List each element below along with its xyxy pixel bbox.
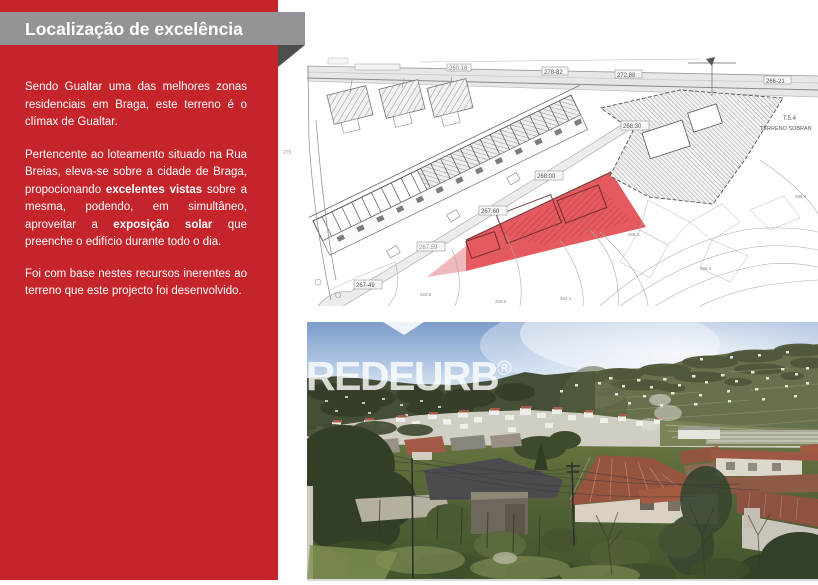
svg-text:REDEURB: REDEURB — [307, 353, 498, 399]
svg-text:272.88: 272.88 — [617, 73, 636, 79]
svg-text:267.60: 267.60 — [481, 209, 500, 215]
svg-text:265.4: 265.4 — [628, 232, 640, 237]
svg-text:263.8: 263.8 — [420, 292, 432, 297]
svg-text:263.0: 263.0 — [495, 299, 507, 304]
svg-text:260.16: 260.16 — [449, 66, 468, 72]
svg-text:T.5.4: T.5.4 — [783, 116, 797, 122]
svg-text:®: ® — [497, 358, 512, 380]
svg-text:266-21: 266-21 — [766, 79, 785, 85]
svg-text:278-82: 278-82 — [544, 70, 563, 76]
svg-text:262.1: 262.1 — [560, 296, 572, 301]
svg-text:267-49: 267-49 — [356, 283, 375, 289]
svg-text:266.4: 266.4 — [700, 266, 712, 271]
svg-text:286.4: 286.4 — [795, 194, 807, 199]
svg-text:268.30: 268.30 — [623, 124, 642, 130]
svg-text:268:00: 268:00 — [537, 174, 556, 180]
svg-text:TERRENO SOBRAN: TERRENO SOBRAN — [760, 126, 812, 132]
svg-text:267.59: 267.59 — [419, 245, 438, 251]
